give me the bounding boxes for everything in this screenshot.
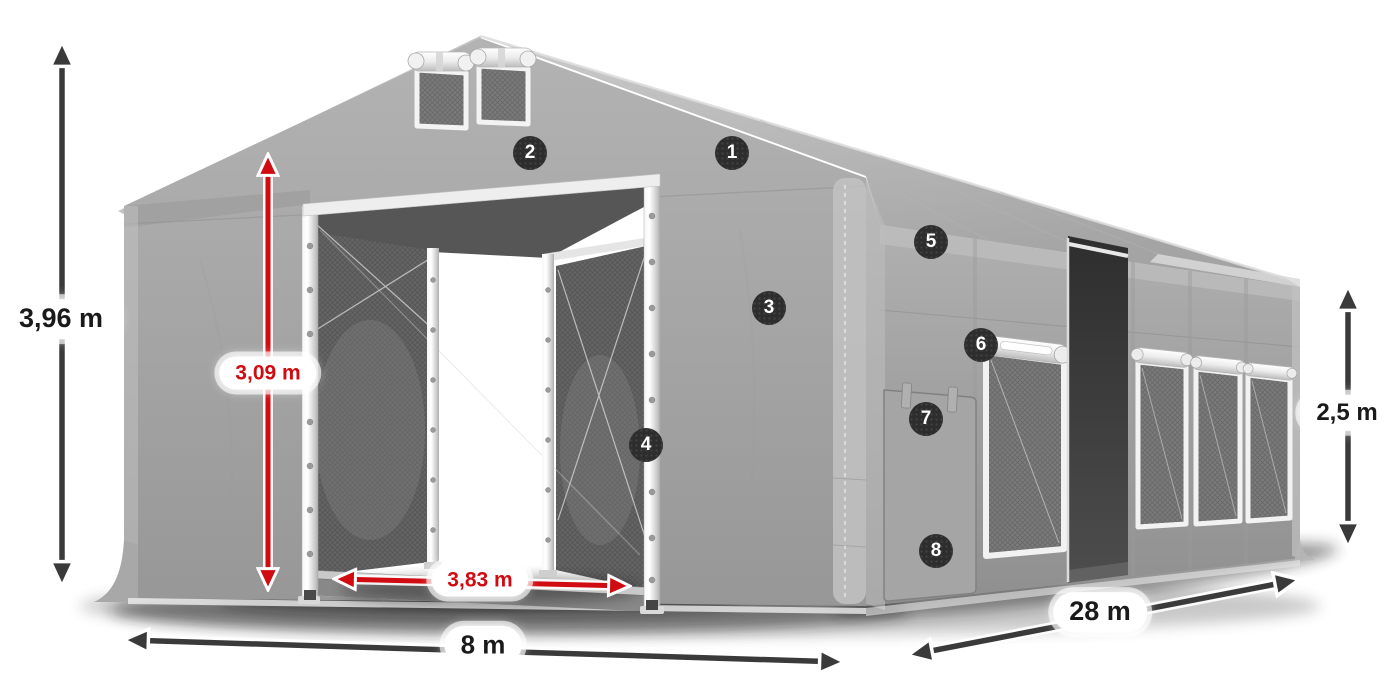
callout-badge-5: 5 xyxy=(914,225,948,259)
entrance-opening xyxy=(298,174,664,614)
side-door-gap xyxy=(1068,236,1128,583)
callout-badge-4: 4 xyxy=(629,428,663,462)
side-windows-far xyxy=(1130,347,1297,527)
dimension-label-side-length: 28 m xyxy=(1053,592,1147,632)
dimension-label-total-height: 3,96 m xyxy=(3,299,119,339)
dimension-label-side-wall-height: 2,5 m xyxy=(1300,395,1393,431)
gable-vent-left xyxy=(408,52,474,128)
callout-badge-1: 1 xyxy=(715,136,749,170)
callout-badge-8: 8 xyxy=(919,534,953,568)
callout-badge-3: 3 xyxy=(752,291,786,325)
gable-vent-right xyxy=(470,48,536,124)
entrance-mesh-right xyxy=(556,246,646,590)
entrance-mesh-left xyxy=(313,232,430,576)
callout-badge-6: 6 xyxy=(964,328,998,362)
dimension-label-door-height: 3,09 m xyxy=(219,356,316,389)
side-window-near xyxy=(978,334,1073,556)
product-diagram: 3,96 m 3,09 m 3,83 m 8 m 28 m 2,5 m 1 2 … xyxy=(0,0,1400,700)
dimension-label-door-width: 3,83 m xyxy=(431,563,528,596)
callout-badge-2: 2 xyxy=(513,136,547,170)
callout-badge-7: 7 xyxy=(909,402,943,436)
dimension-label-front-width: 8 m xyxy=(445,626,522,665)
tent-illustration xyxy=(0,0,1400,700)
